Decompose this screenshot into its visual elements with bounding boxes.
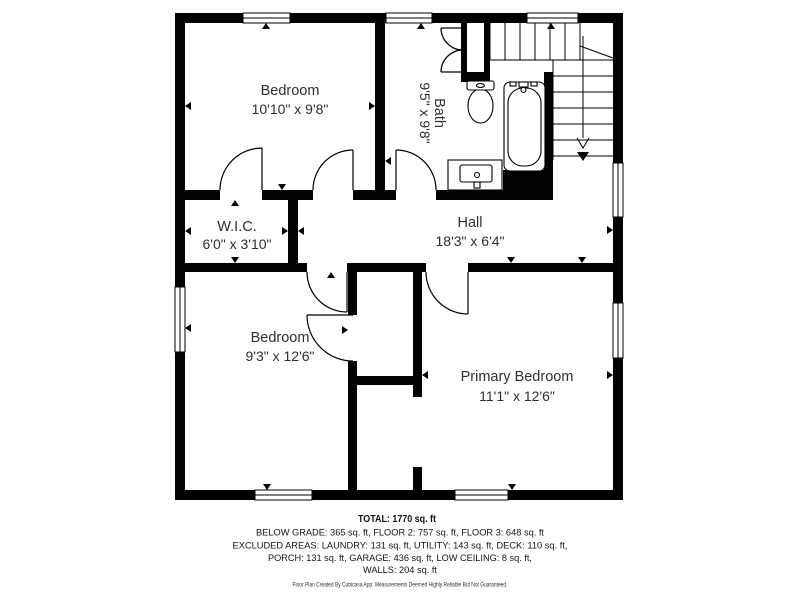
window-right-hall <box>613 163 623 217</box>
hall-south-wall-seg1 <box>185 263 307 272</box>
walls <box>175 13 623 500</box>
toilet <box>467 81 494 123</box>
bedroom-top-label: Bedroom <box>261 83 320 99</box>
window-left-bedroom <box>175 287 185 352</box>
bath-label-group: Bath 9'5" x 9'8" <box>417 82 447 143</box>
window-top-bath <box>386 13 432 23</box>
primary-bedroom-label: Primary Bedroom <box>461 369 574 385</box>
hall-label: Hall <box>458 215 483 231</box>
summary-line-1: BELOW GRADE: 365 sq. ft, FLOOR 2: 757 sq… <box>256 528 544 539</box>
stairs-down-arrow <box>577 36 589 161</box>
floor-plan: Bedroom 10'10" x 9'8" Bath 9'5" x 9'8" W… <box>0 0 800 600</box>
windows <box>175 13 623 500</box>
door-bedroom-wic <box>220 148 262 190</box>
wic-label: W.I.C. <box>217 219 256 235</box>
wic-dims: 6'0" x 3'10" <box>203 236 272 252</box>
outer-wall-bottom <box>175 490 623 500</box>
doors <box>220 28 468 361</box>
bedroom-top-dims: 10'10" x 9'8" <box>252 101 329 117</box>
bedroom-south-wall-seg3 <box>353 190 396 200</box>
wic-east-wall <box>288 200 298 263</box>
bedroom-closet-wall-seg2 <box>348 361 357 490</box>
closet-primary-wall-seg2 <box>413 467 422 490</box>
bedroom-bottom-dims: 9'3" x 12'6" <box>246 348 315 364</box>
window-top-stairs <box>527 13 578 23</box>
bedroom-bath-wall <box>375 13 385 200</box>
door-bath-bifold <box>441 28 463 72</box>
chase-wall-left <box>461 23 467 72</box>
hall-south-wall-seg3 <box>468 263 613 272</box>
bathtub <box>504 82 545 171</box>
closet-primary-wall-seg1 <box>413 272 422 397</box>
hall-south-wall-seg2 <box>347 263 426 272</box>
bedroom-bottom-label: Bedroom <box>251 330 310 346</box>
area-summary: TOTAL: 1770 sq. ft BELOW GRADE: 365 sq. … <box>233 513 568 589</box>
closet-divider-wall <box>357 376 413 385</box>
bedroom-south-wall-seg1 <box>185 190 220 200</box>
bath-dims: 9'5" x 9'8" <box>417 82 433 143</box>
disclaimer-text: Floor Plan Created By Cubicasa App. Meas… <box>293 582 508 589</box>
door-bedroom-hall <box>313 150 353 190</box>
bedroom-closet-wall-seg1 <box>348 272 357 315</box>
outer-wall-right <box>613 13 623 500</box>
outer-wall-left <box>175 13 185 500</box>
bedroom-south-wall-seg2 <box>262 190 313 200</box>
door-primary-hall <box>426 272 468 314</box>
sink-vanity <box>448 160 502 190</box>
primary-bedroom-dims: 11'1" x 12'6" <box>479 388 555 404</box>
hall-dims: 18'3" x 6'4" <box>436 233 505 249</box>
summary-total: TOTAL: 1770 sq. ft <box>358 513 436 525</box>
summary-line-4: WALLS: 204 sq. ft <box>363 565 437 576</box>
bath-south-wall-seg <box>436 190 503 200</box>
chase-wall-right <box>484 23 490 72</box>
window-bottom-bedroom <box>255 490 312 500</box>
bath-corner-chunk <box>503 170 553 200</box>
window-top-bedroom <box>243 13 290 23</box>
summary-line-2: EXCLUDED AREAS: LAUNDRY: 131 sq. ft, UTI… <box>233 541 568 552</box>
window-right-primary <box>613 303 623 358</box>
door-bath <box>396 150 436 190</box>
window-bottom-primary <box>455 490 508 500</box>
summary-line-3: PORCH: 131 sq. ft, GARAGE: 436 sq. ft, L… <box>268 553 532 564</box>
